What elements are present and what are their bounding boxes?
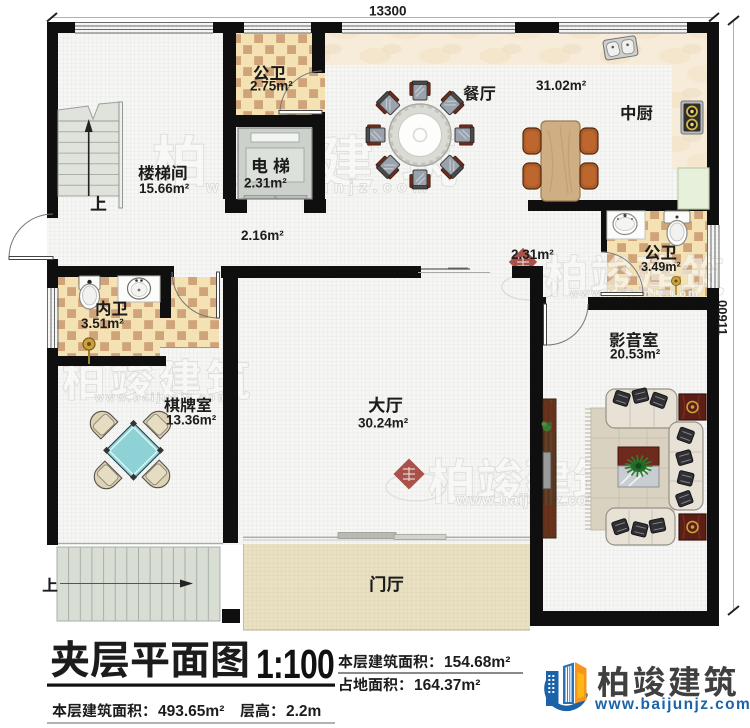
svg-text:20.53m²: 20.53m²: [610, 347, 661, 362]
svg-text:164.37m²: 164.37m²: [414, 677, 480, 694]
svg-text:2.31m²: 2.31m²: [511, 247, 554, 262]
svg-text:3.49m²: 3.49m²: [641, 260, 681, 274]
svg-text:154.68m²: 154.68m²: [444, 654, 510, 671]
svg-text:www.baijunjz.com: www.baijunjz.com: [455, 492, 602, 509]
svg-text:1:100: 1:100: [256, 641, 335, 687]
svg-text:00911: 00911: [715, 300, 730, 335]
svg-text:2.75m²: 2.75m²: [250, 79, 293, 94]
svg-text:www.baijunjz.com: www.baijunjz.com: [594, 696, 750, 713]
svg-text:493.65m²: 493.65m²: [158, 703, 224, 720]
svg-text:2.31m²: 2.31m²: [244, 176, 287, 191]
svg-text:13.36m²: 13.36m²: [166, 413, 217, 428]
svg-text:30.24m²: 30.24m²: [358, 416, 409, 431]
svg-text:2.16m²: 2.16m²: [241, 228, 284, 243]
svg-text:2.2m: 2.2m: [286, 703, 321, 720]
svg-text:www.baijunjz.com: www.baijunjz.com: [94, 392, 230, 404]
svg-text:15.66m²: 15.66m²: [139, 181, 190, 196]
svg-text:13300: 13300: [369, 4, 407, 19]
svg-text:3.51m²: 3.51m²: [81, 316, 124, 331]
svg-text:31.02m²: 31.02m²: [536, 78, 587, 93]
